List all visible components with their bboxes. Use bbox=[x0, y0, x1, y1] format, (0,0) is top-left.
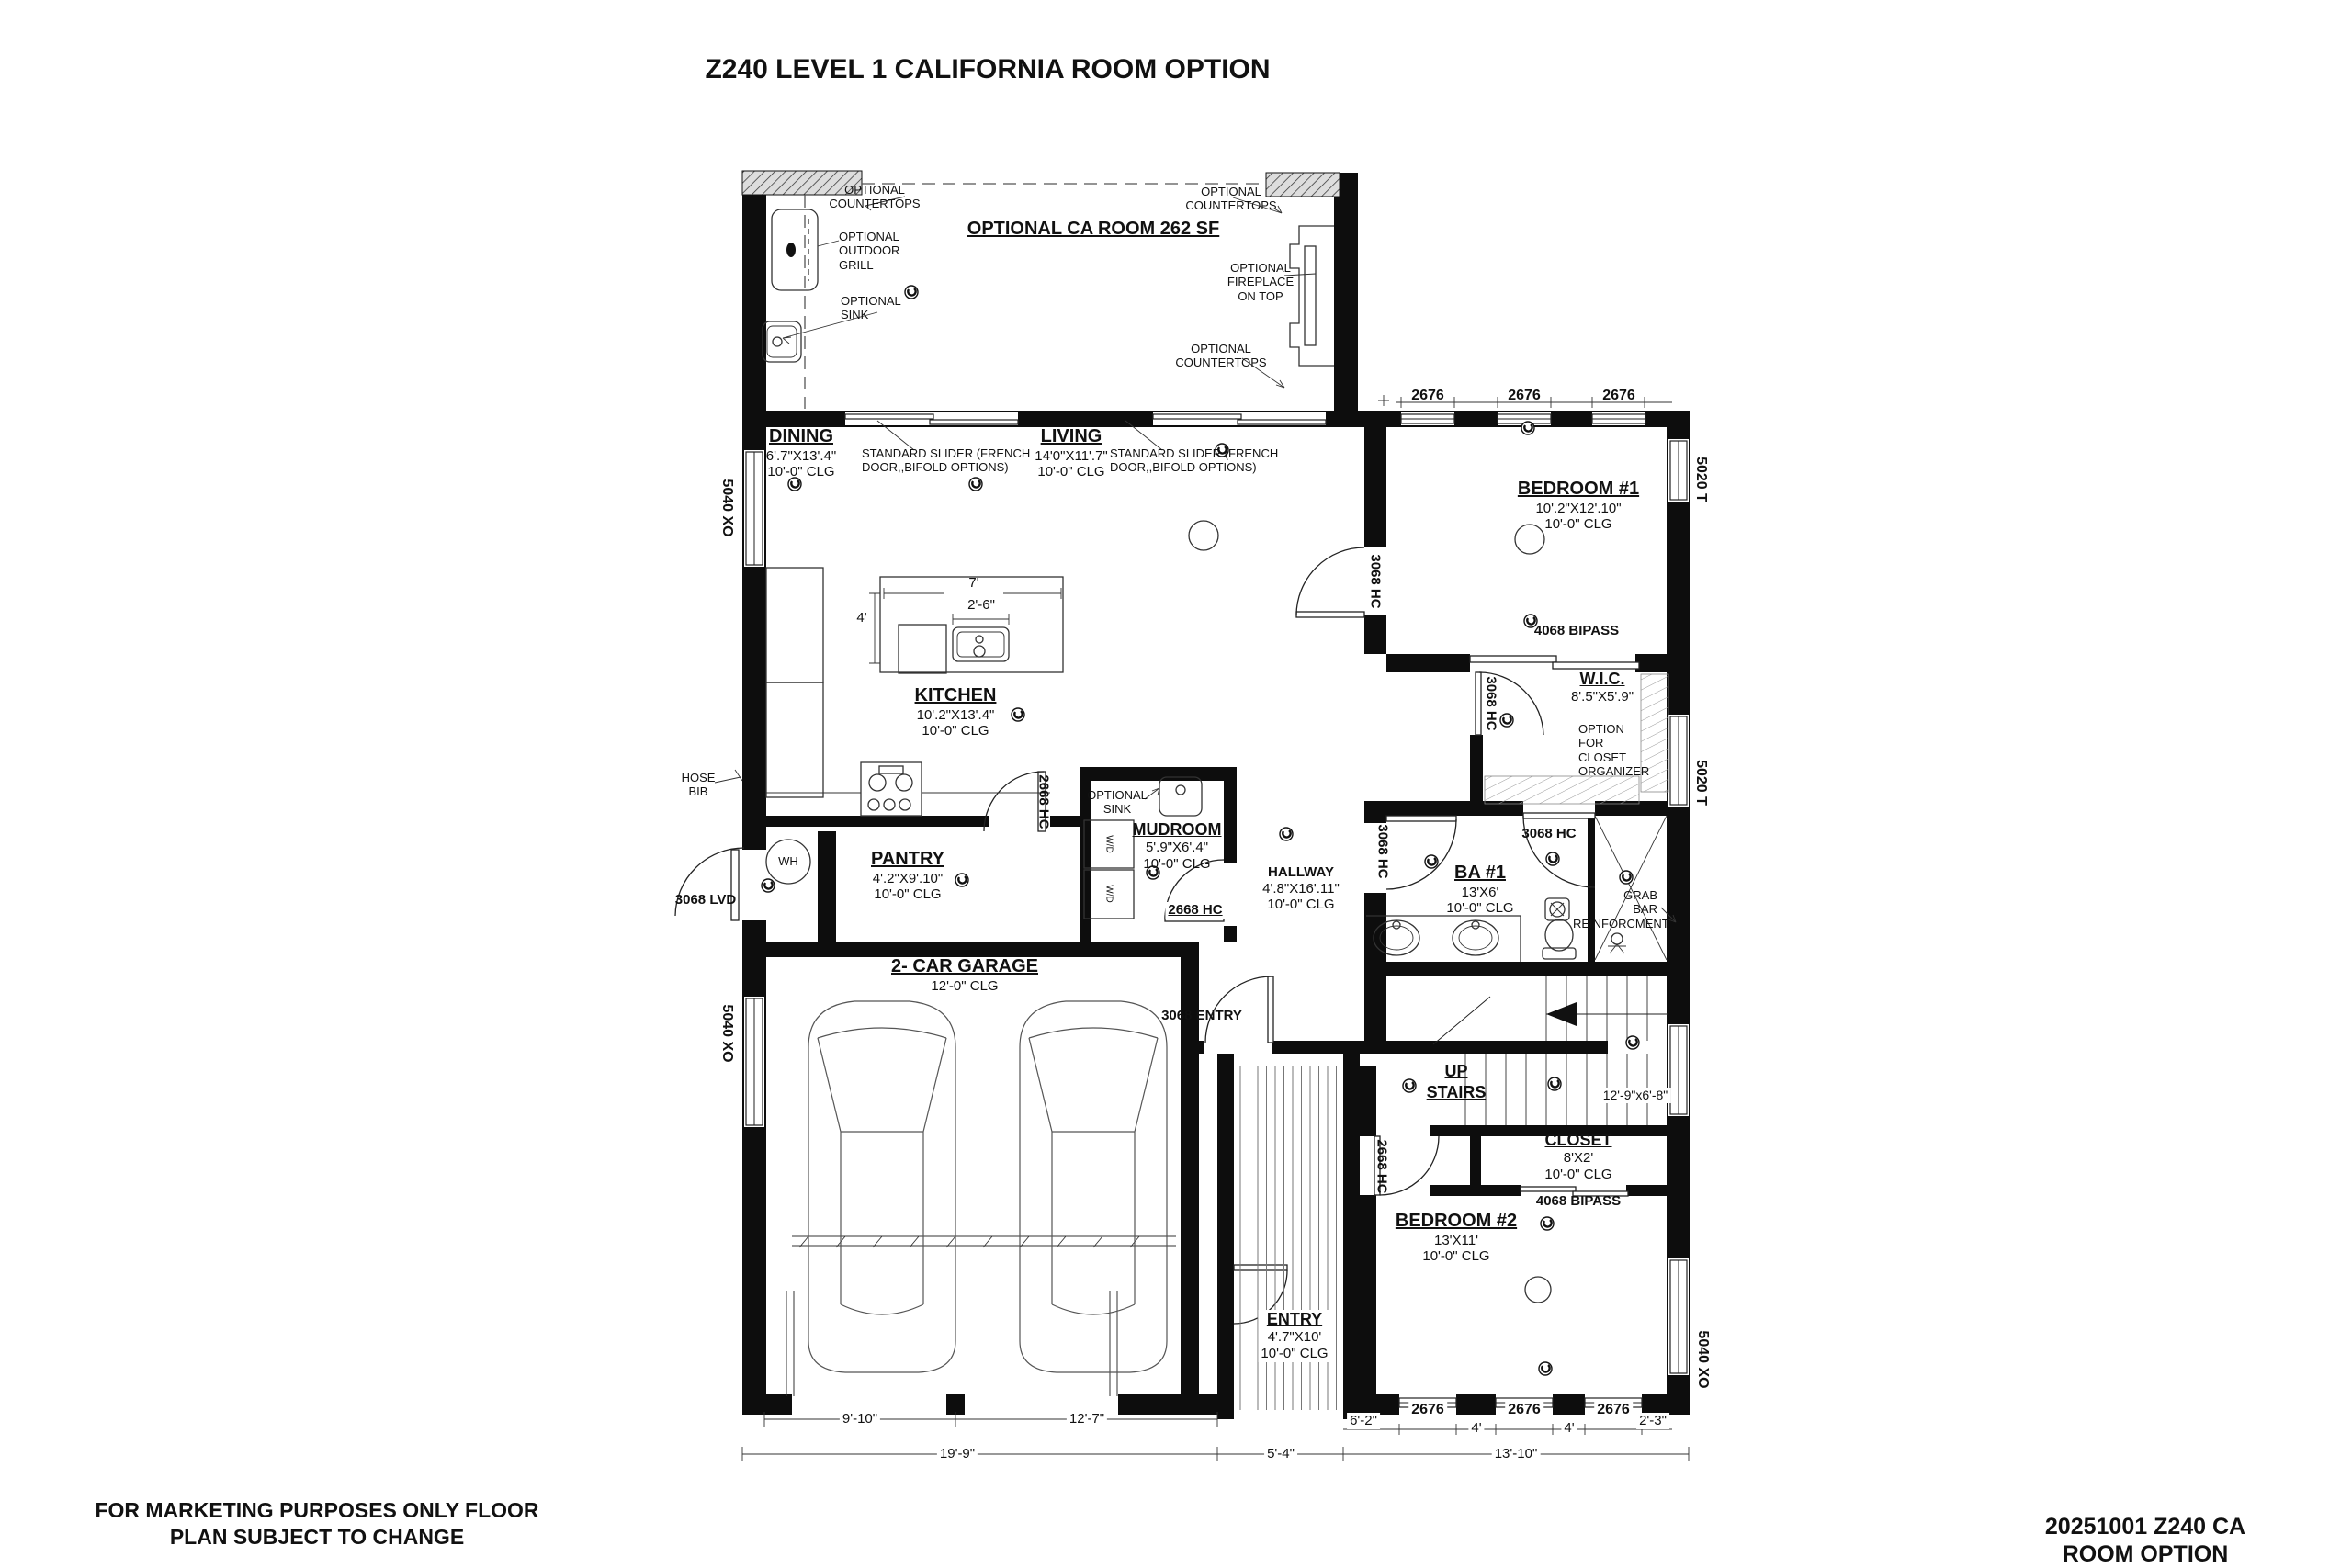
room-label-pantry: PANTRY 4'.2"X9'.10" 10'-0" CLG bbox=[871, 849, 944, 903]
floorplan-sheet: Z240 LEVEL 1 CALIFORNIA ROOM OPTION OPTI… bbox=[0, 0, 2352, 1568]
window-label-5020t-2: 5020 T bbox=[1692, 760, 1709, 806]
door-label-bipass-2: 4068 BIPASS bbox=[1536, 1193, 1621, 1210]
cars bbox=[808, 1001, 1167, 1372]
annotation-outdoor-grill: OPTIONAL OUTDOOR GRILL bbox=[839, 230, 899, 272]
dim-porch: 5'-4" bbox=[1264, 1446, 1297, 1462]
bath-vanity bbox=[1366, 916, 1521, 962]
island-sink-dim: 2'-6" bbox=[967, 597, 995, 614]
water-heater-label: WH bbox=[778, 854, 798, 868]
door-label-entry: 3068 ENTRY bbox=[1161, 1008, 1242, 1024]
room-label-dining: DINING 6'.7"X13'.4" 10'-0" CLG bbox=[766, 426, 836, 480]
annotation-optional-countertops-3: OPTIONAL COUNTERTOPS bbox=[1175, 342, 1266, 370]
outdoor-grill bbox=[772, 209, 818, 290]
dim-garage-door-right: 12'-7" bbox=[1067, 1411, 1107, 1427]
door-label-bedroom2-hc: 2668 HC bbox=[1374, 1139, 1390, 1193]
window-label-5040xo-left-1: 5040 XO bbox=[718, 479, 735, 536]
dim-4ft-2: 4' bbox=[1561, 1420, 1577, 1437]
window-label-2676-bottom-2: 2676 bbox=[1505, 1402, 1543, 1419]
ca-optional-sink bbox=[763, 321, 801, 362]
room-label-living: LIVING 14'0"X11'.7" 10'-0" CLG bbox=[1035, 426, 1108, 480]
car-2 bbox=[1020, 1001, 1167, 1372]
annotation-optional-fireplace: OPTIONAL FIREPLACE ON TOP bbox=[1227, 261, 1294, 303]
room-label-entry: ENTRY 4'.7"X10' 10'-0" CLG bbox=[1258, 1310, 1330, 1362]
washer-dryer-label-1: W/D bbox=[1104, 835, 1114, 852]
dim-bedroom2-total: 13'-10" bbox=[1492, 1446, 1541, 1462]
annotation-optional-countertops-2: OPTIONAL COUNTERTOPS bbox=[1185, 185, 1276, 213]
door-label-wic-hc: 3068 HC bbox=[1484, 676, 1499, 730]
window-label-5040xo-left-2: 5040 XO bbox=[718, 1004, 735, 1062]
survey-tick bbox=[1378, 395, 1389, 406]
ceiling-light bbox=[1525, 1277, 1551, 1303]
annotation-grab-bar: GRAB BAR REINFORCMENT bbox=[1573, 888, 1657, 931]
window-label-2676-top-2: 2676 bbox=[1508, 388, 1541, 405]
dim-garage-door-left: 9'-10" bbox=[840, 1411, 880, 1427]
door-label-pantry-hc: 2668 HC bbox=[1036, 774, 1052, 829]
dim-6-2: 6'-2" bbox=[1347, 1413, 1380, 1429]
exhaust-fan bbox=[1545, 898, 1569, 920]
ceiling-light bbox=[1189, 521, 1218, 550]
room-label-mudroom: MUDROOM 5'.9"X6'.4" 10'-0" CLG bbox=[1133, 820, 1222, 873]
annotation-slider-2: STANDARD SLIDER (FRENCH DOOR,,BIFOLD OPT… bbox=[1110, 446, 1278, 475]
room-label-hallway: HALLWAY 4'.8"X16'.11" 10'-0" CLG bbox=[1262, 864, 1340, 913]
kitchen-island bbox=[880, 577, 1063, 673]
range-stove bbox=[861, 762, 922, 816]
dim-garage-total: 19'-9" bbox=[937, 1446, 978, 1462]
room-label-closet: CLOSET 8'X2' 10'-0" CLG bbox=[1544, 1131, 1611, 1183]
stairs-size: 12'-9"x6'-8" bbox=[1600, 1088, 1671, 1103]
annotation-closet-organizer: OPTION FOR CLOSET ORGANIZER bbox=[1578, 722, 1649, 778]
annotation-slider-1: STANDARD SLIDER (FRENCH DOOR,,BIFOLD OPT… bbox=[862, 446, 1030, 475]
window-label-2676-bottom-3: 2676 bbox=[1594, 1402, 1633, 1419]
room-label-bedroom1: BEDROOM #1 10'.2"X12'.10" 10'-0" CLG bbox=[1518, 479, 1639, 533]
fireplace bbox=[1290, 226, 1334, 366]
door-label-bath-hc-v: 3068 HC bbox=[1375, 824, 1391, 878]
room-label-wic: W.I.C. 8'.5"X5'.9" bbox=[1571, 670, 1634, 705]
footer-disclaimer: FOR MARKETING PURPOSES ONLY FLOOR PLAN S… bbox=[95, 1497, 538, 1551]
footer-plan-id: 20251001 Z240 CA ROOM OPTION bbox=[2042, 1514, 2249, 1568]
toilet bbox=[1543, 919, 1576, 959]
door-label-lvd: 3068 LVD bbox=[675, 892, 736, 908]
page-title: Z240 LEVEL 1 CALIFORNIA ROOM OPTION bbox=[705, 53, 1270, 85]
window-label-5040xo-right: 5040 XO bbox=[1694, 1330, 1711, 1388]
stairs-up-arrow bbox=[1546, 1002, 1577, 1026]
stairs-label: STAIRS bbox=[1427, 1083, 1487, 1102]
door-label-bath-hc: 3068 HC bbox=[1521, 826, 1576, 842]
window-label-2676-bottom-1: 2676 bbox=[1408, 1402, 1447, 1419]
car-1 bbox=[808, 1001, 955, 1372]
door-label-mudroom-hc: 2668 HC bbox=[1165, 902, 1225, 919]
door-label-bipass-1: 4068 BIPASS bbox=[1534, 623, 1619, 639]
door-label-bedroom1-hc: 3068 HC bbox=[1368, 554, 1384, 608]
window-label-5020t-1: 5020 T bbox=[1692, 457, 1709, 502]
room-label-bath1: BA #1 13'X6' 10'-0" CLG bbox=[1446, 863, 1513, 917]
window-label-2676-top-3: 2676 bbox=[1602, 388, 1635, 405]
dim-2-3: 2'-3" bbox=[1636, 1413, 1669, 1429]
annotation-hose-bib: HOSE BIB bbox=[682, 771, 716, 799]
window-label-2676-top-1: 2676 bbox=[1411, 388, 1444, 405]
island-width-dim: 7' bbox=[968, 575, 978, 592]
room-label-garage: 2- CAR GARAGE 12'-0" CLG bbox=[891, 956, 1038, 994]
dim-4ft-1: 4' bbox=[1468, 1420, 1484, 1437]
mudroom-sink bbox=[1159, 777, 1202, 816]
annotation-optional-sink-2: OPTIONAL SINK bbox=[1087, 788, 1148, 817]
washer-dryer-label-2: W/D bbox=[1104, 885, 1114, 902]
room-label-bedroom2: BEDROOM #2 13'X11' 10'-0" CLG bbox=[1396, 1211, 1517, 1265]
annotation-optional-sink-1: OPTIONAL SINK bbox=[841, 294, 901, 322]
stairs-up-label: UP bbox=[1444, 1062, 1467, 1081]
ca-room-title: OPTIONAL CA ROOM 262 SF bbox=[967, 219, 1219, 241]
island-depth-dim: 4' bbox=[856, 610, 866, 626]
annotation-optional-countertops-1: OPTIONAL COUNTERTOPS bbox=[829, 183, 920, 211]
room-label-kitchen: KITCHEN 10'.2"X13'.4" 10'-0" CLG bbox=[915, 685, 997, 739]
